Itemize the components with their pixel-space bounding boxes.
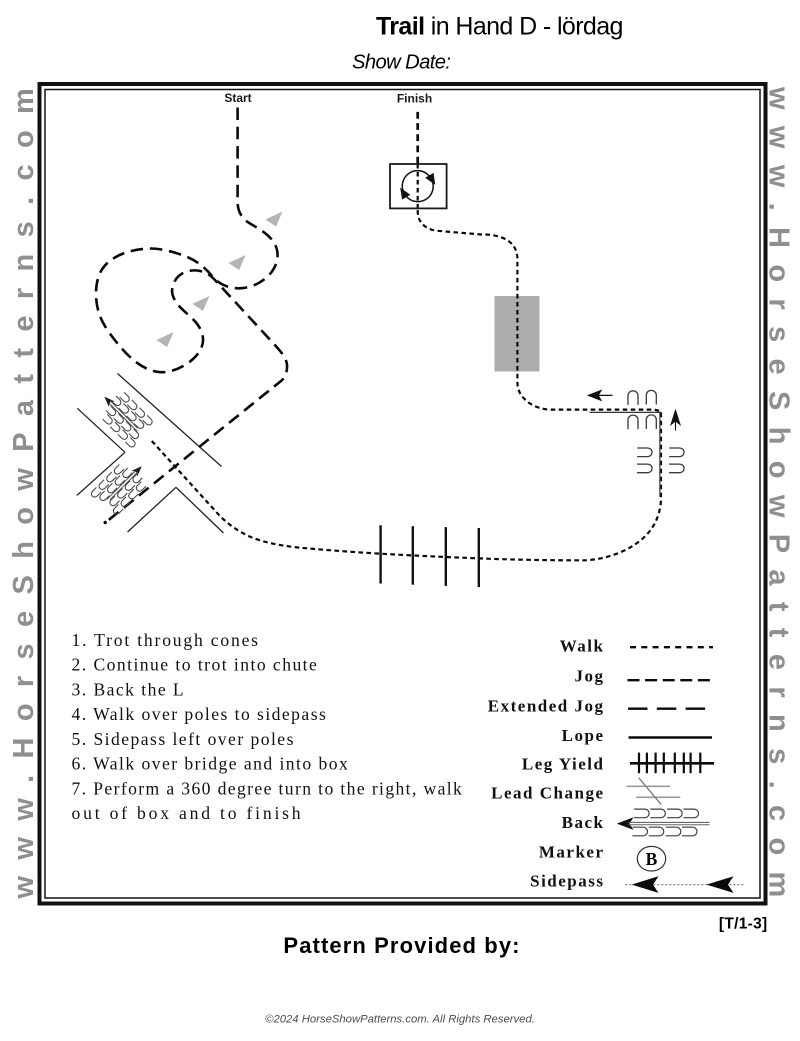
svg-text:©2024 HorseShowPatterns.com. A: ©2024 HorseShowPatterns.com. All Rights … <box>265 1014 535 1026</box>
svg-text:Finish: Finish <box>397 92 432 106</box>
svg-text:B: B <box>646 849 658 869</box>
svg-text:Extended Jog: Extended Jog <box>488 697 605 716</box>
svg-text:Jog: Jog <box>575 667 605 686</box>
svg-text:Start: Start <box>224 91 251 105</box>
svg-text:out of box and to finish: out of box and to finish <box>72 803 304 823</box>
svg-text:7. Perform a 360 degree turn t: 7. Perform a 360 degree turn to the righ… <box>72 778 464 798</box>
svg-text:[T/1-3]: [T/1-3] <box>719 916 768 933</box>
svg-text:Lope: Lope <box>562 726 605 745</box>
svg-text:Trail in Hand D - lördag: Trail in Hand D - lördag <box>376 12 623 40</box>
svg-text:Lead Change: Lead Change <box>491 784 604 803</box>
svg-text:Walk: Walk <box>560 637 605 656</box>
svg-text:Back: Back <box>562 813 605 832</box>
svg-text:www.HorseShowPatterns.com: www.HorseShowPatterns.com <box>8 72 40 900</box>
svg-text:2. Continue to trot into chute: 2. Continue to trot into chute <box>72 655 319 675</box>
svg-text:Sidepass: Sidepass <box>530 872 604 891</box>
svg-text:5. Sidepass left over poles: 5. Sidepass left over poles <box>72 729 295 749</box>
svg-text:Show Date:: Show Date: <box>352 51 450 73</box>
svg-text:Marker: Marker <box>539 843 605 862</box>
svg-text:1. Trot through cones: 1. Trot through cones <box>72 630 260 650</box>
svg-text:Pattern Provided by:: Pattern Provided by: <box>283 933 520 958</box>
svg-text:6. Walk over bridge and into b: 6. Walk over bridge and into box <box>72 754 350 774</box>
svg-text:4. Walk over poles to sidepass: 4. Walk over poles to sidepass <box>72 704 328 724</box>
svg-text:3. Back the L: 3. Back the L <box>72 679 186 699</box>
svg-text:Leg Yield: Leg Yield <box>522 755 605 774</box>
